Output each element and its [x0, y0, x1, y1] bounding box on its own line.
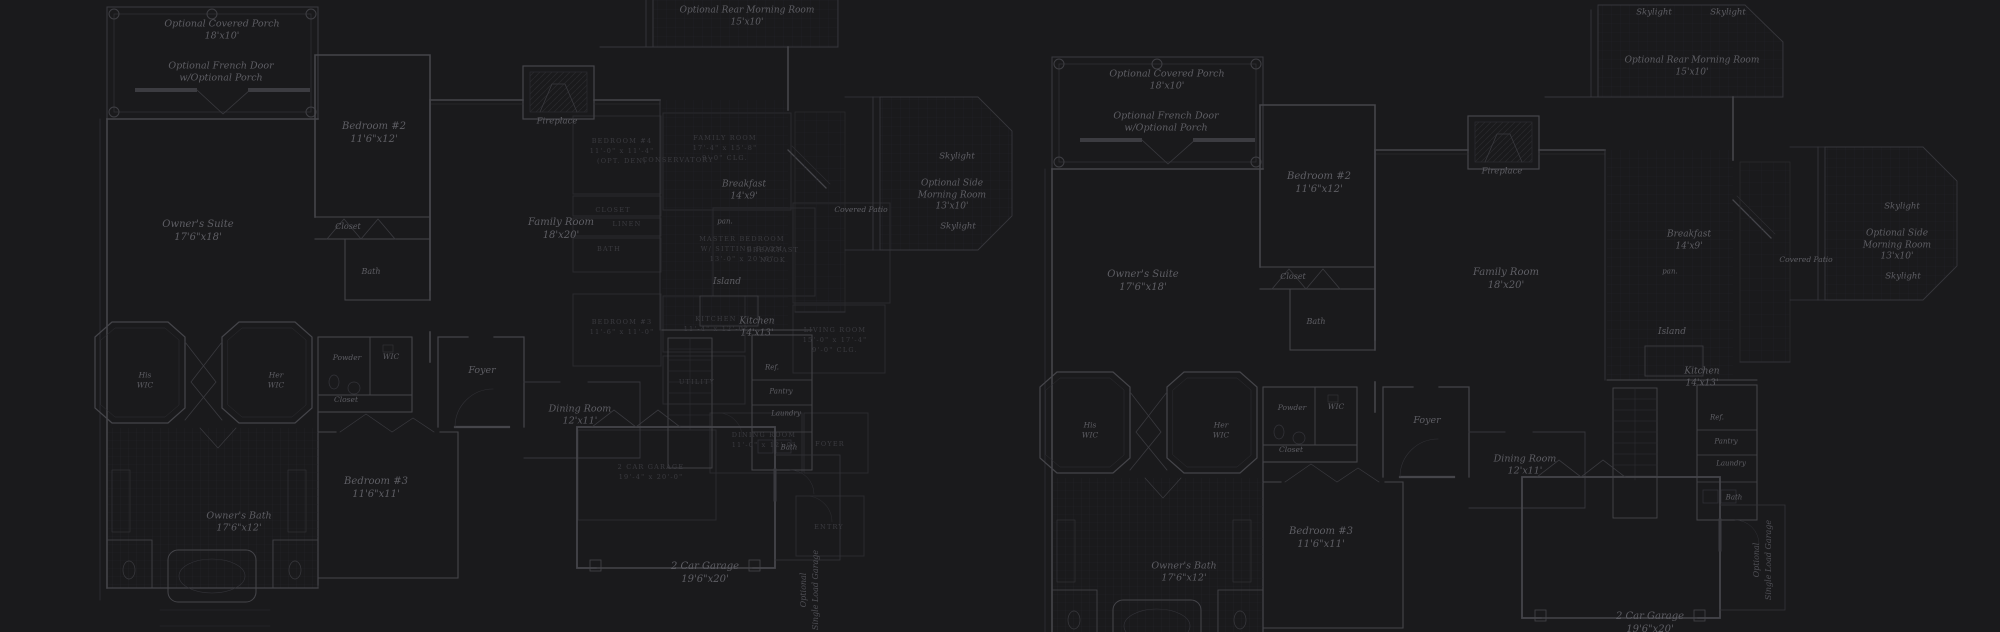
- blueprint-canvas: Optional Covered Porch18'x10'Optional Fr…: [0, 0, 2000, 632]
- floorplan-right-lines: [1040, 5, 1957, 632]
- floorplan-linework: [0, 0, 2000, 632]
- floorplan-left-lines: [95, 0, 1012, 626]
